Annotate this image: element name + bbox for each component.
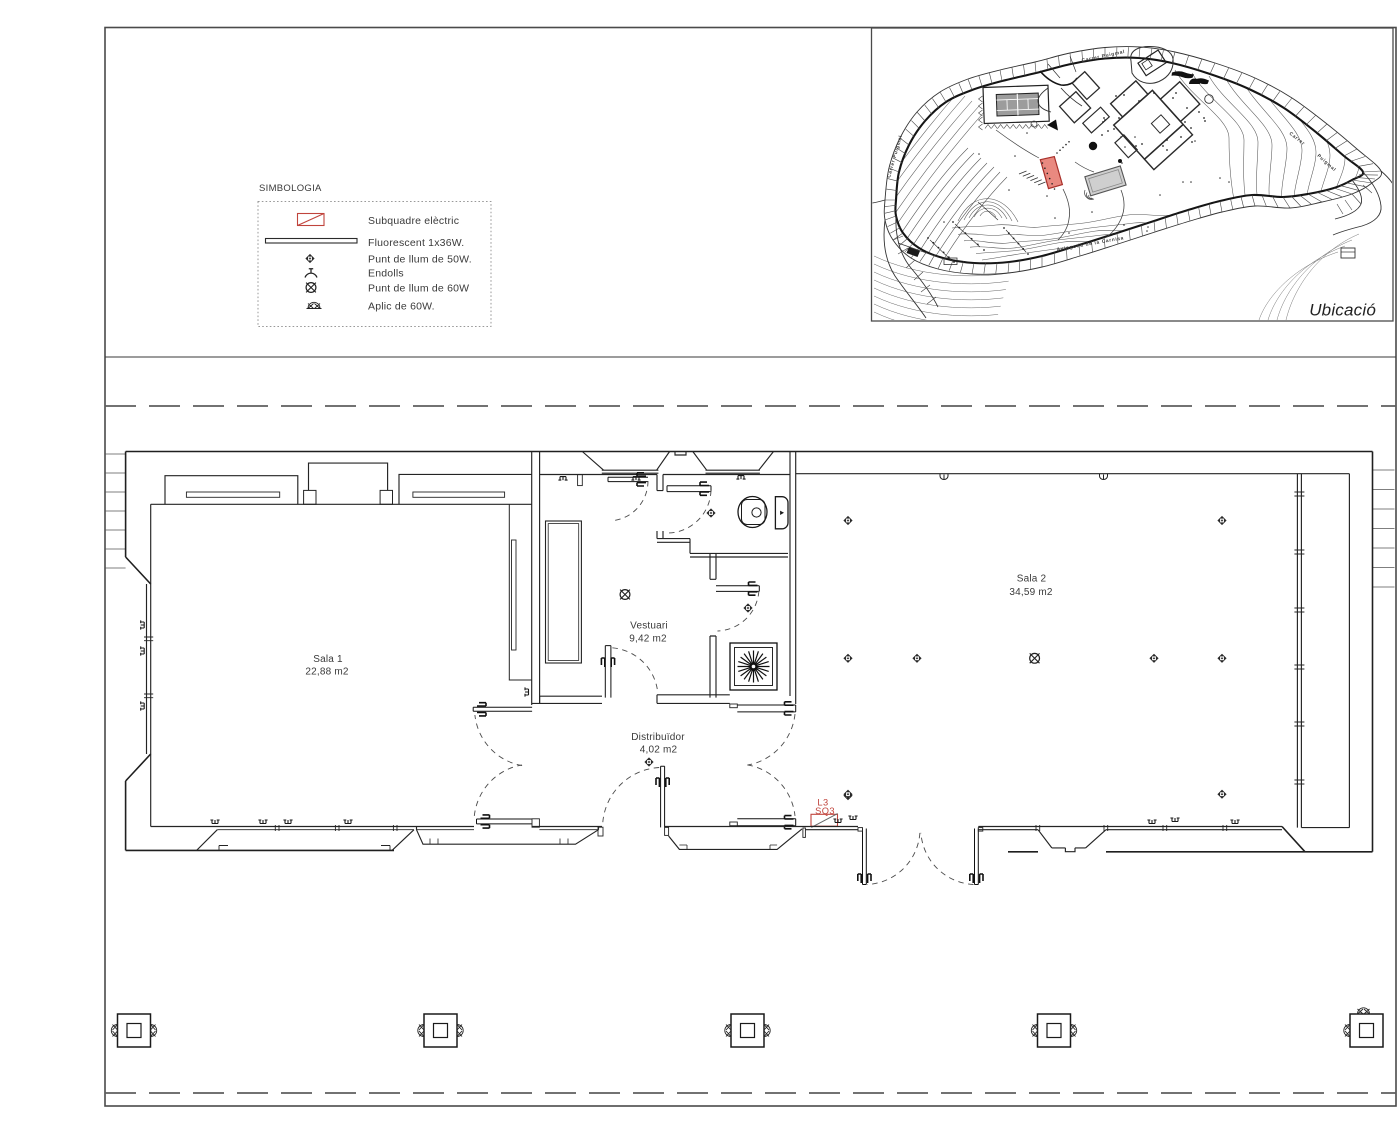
svg-text:SIMBOLOGIA: SIMBOLOGIA (259, 183, 322, 194)
svg-text:Vestuari: Vestuari (630, 621, 668, 632)
svg-text:Ubicació: Ubicació (1309, 301, 1376, 320)
svg-text:Punt de llum de 60W: Punt de llum de 60W (368, 283, 469, 295)
svg-text:34,59 m2: 34,59 m2 (1009, 587, 1053, 598)
svg-text:Subquadre elèctric: Subquadre elèctric (368, 215, 459, 227)
svg-text:Endolls: Endolls (368, 268, 404, 280)
svg-text:9,42 m2: 9,42 m2 (629, 634, 667, 645)
svg-text:Sala 2: Sala 2 (1017, 574, 1047, 585)
svg-text:Fluorescent 1x36W.: Fluorescent 1x36W. (368, 237, 464, 249)
svg-text:Punt de llum de 50W.: Punt de llum de 50W. (368, 254, 472, 266)
svg-text:22,88 m2: 22,88 m2 (305, 667, 349, 678)
svg-text:Sala 1: Sala 1 (313, 654, 343, 665)
svg-text:Distribuïdor: Distribuïdor (631, 732, 685, 743)
svg-text:Aplic de 60W.: Aplic de 60W. (368, 301, 435, 313)
svg-text:4,02 m2: 4,02 m2 (640, 745, 678, 756)
svg-text:SQ3: SQ3 (815, 806, 835, 816)
